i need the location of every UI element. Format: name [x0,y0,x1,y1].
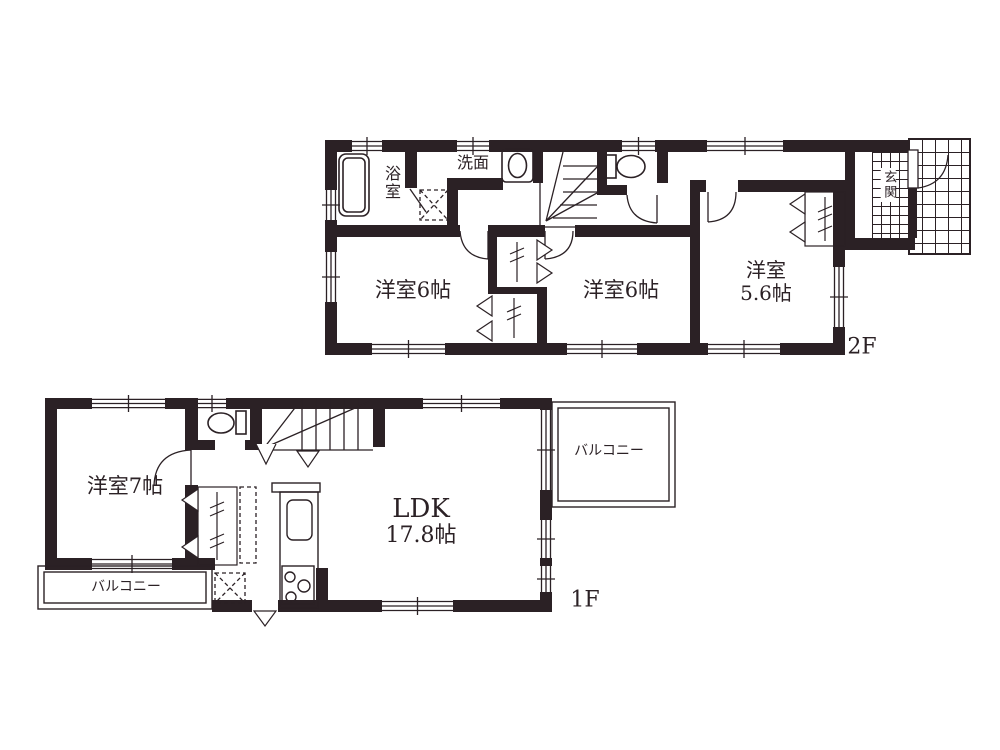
wall [845,140,855,250]
wall [597,185,627,195]
stove-icon [282,566,314,604]
room-label-balcony-front: バルコニー [91,580,161,596]
vanity-sink-icon [502,149,533,182]
room-label-bedroom-b: 洋室6帖 [583,279,659,303]
room-label-ldk-name: LDK [386,495,457,524]
room-label-ldk: LDK 17.8帖 [386,495,457,549]
room-label-bedroom-c-size: 5.6帖 [740,282,792,305]
window [537,520,555,558]
window [537,566,555,592]
room-label-bath: 浴室 [382,165,400,201]
washing-machine-pan-icon [215,573,245,603]
window [622,137,655,155]
window [830,267,848,327]
room-label-washroom: 洗面 [457,154,489,172]
wall [537,294,547,343]
window [198,395,226,412]
toilet-icon [606,155,645,178]
wall [908,183,917,238]
walls-2f [325,140,917,355]
stairs-down-arrow-icon [297,451,319,467]
closet-hanger-icon [510,240,552,283]
window [322,190,340,220]
wall [845,238,915,250]
wall [488,237,497,287]
window [92,555,172,573]
window [322,252,340,302]
entrance-door-arc [908,150,948,188]
back-door-opening [252,600,278,612]
wall [690,180,700,355]
kitchen-sink-icon [287,500,312,540]
room-label-bedroom-7: 洋室7帖 [87,475,163,499]
toilet-icon [208,411,246,434]
wall [405,152,417,188]
room-label-bedroom-a: 洋室6帖 [375,279,451,303]
wall [665,140,908,152]
back-door-icon [254,611,276,626]
wall [657,152,668,183]
wall [185,440,215,450]
washing-machine-pan-icon [420,190,448,220]
stairs-icon [540,152,597,227]
window [382,597,453,615]
wall [533,152,543,183]
room-label-bedroom-c: 洋室 5.6帖 [740,259,792,305]
wall [373,409,385,447]
wall [488,225,545,237]
refrigerator-space [240,487,256,563]
window [423,395,500,412]
wall [488,287,547,294]
kitchen-counter [272,483,320,608]
wall [448,178,503,190]
door-arc [627,195,657,223]
room-label-balcony-side: バルコニー [574,444,644,460]
door-leaf-icon [256,444,276,464]
door-arc [708,192,736,222]
floor-label-2f: 2F [847,336,876,361]
wall [738,180,850,192]
wall [45,409,57,570]
bathtub-icon [339,154,369,216]
window [707,137,783,155]
closet-hanger-icon [477,296,521,341]
floor-plan-canvas: 浴室 洗面 玄関 洋室6帖 洋室6帖 洋室 5.6帖 2F 洋室7帖 LDK 1… [0,0,1000,750]
room-label-ldk-size: 17.8帖 [386,524,457,549]
door-arc [460,231,488,259]
window [352,137,382,155]
window [567,340,637,358]
door-arc [545,231,573,259]
window [92,395,165,412]
room-label-bedroom-c-name: 洋室 [740,259,792,282]
room-label-entrance: 玄関 [881,168,896,202]
window [372,340,445,358]
wall [325,225,460,237]
floor-plan-drawing [0,0,1000,750]
floor-label-1f: 1F [570,589,599,614]
window [708,340,780,358]
bath-folding-door [410,189,426,212]
